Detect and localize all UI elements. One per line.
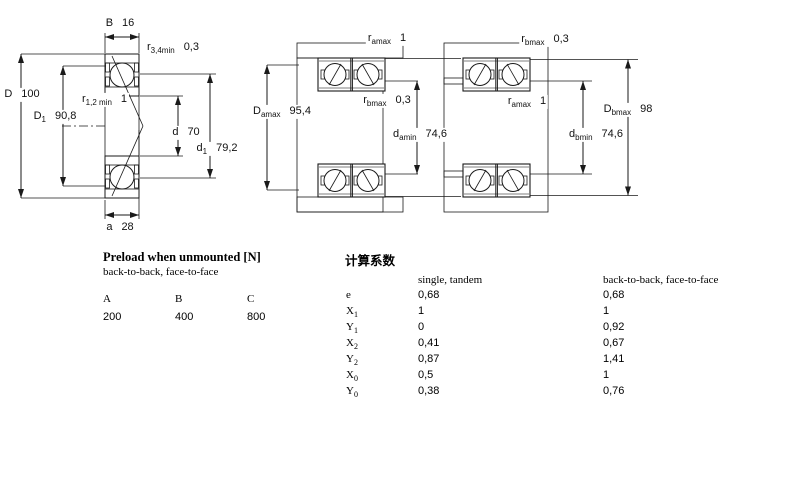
factor-paired-value: 1 — [603, 369, 800, 381]
dim-label-a: a28 — [104, 221, 135, 235]
dim-label-r12: r1,2 min1 — [80, 93, 129, 107]
dim-label-damin: damin74,6 — [391, 128, 449, 142]
preload-value-row: 200 400 800 — [103, 311, 319, 323]
factor-paired-value: 0,67 — [603, 337, 800, 349]
factor-row-y0: Y0 0,38 0,76 — [346, 385, 800, 401]
factor-row-x0: X0 0,5 1 — [346, 369, 800, 385]
factor-symbol: X1 — [346, 305, 418, 319]
factor-paired-value: 0,68 — [603, 289, 800, 301]
preload-col-a: A — [103, 293, 175, 305]
factor-row-x2: X2 0,41 0,67 — [346, 337, 800, 353]
factor-single-value: 0,5 — [418, 369, 603, 381]
dim-label-d1: d179,2 — [195, 142, 240, 156]
bearing-pair — [318, 58, 385, 91]
factor-single-value: 1 — [418, 305, 603, 317]
bearing-pair — [463, 164, 530, 197]
factor-single-value: 0,38 — [418, 385, 603, 397]
preload-subtitle: back-to-back, face-to-face — [103, 266, 218, 278]
preload-value-b: 400 — [175, 311, 247, 323]
preload-value-a: 200 — [103, 311, 175, 323]
ball — [110, 165, 134, 189]
factors-header-row: single, tandem back-to-back, face-to-fac… — [346, 274, 800, 290]
preload-title: Preload when unmounted [N] — [103, 250, 261, 265]
dim-label-rbmax-2: rbmax0,3 — [519, 33, 571, 47]
dim-label-D1: D190,8 — [32, 110, 79, 124]
dim-label-r34: r3,4min0,3 — [145, 41, 201, 55]
dim-label-Dbmax: Dbmax98 — [602, 103, 655, 117]
dim-label-dbmin: dbmin74,6 — [567, 128, 625, 142]
dim-label-ramax: ramax1 — [366, 32, 408, 46]
bearing-pair — [463, 58, 530, 91]
dim-label-B: B16 — [104, 17, 137, 31]
dim-label-D: D100 — [2, 88, 41, 102]
factor-symbol: e — [346, 289, 418, 303]
dim-label-ramax-2: ramax1 — [506, 95, 548, 109]
shaft-shoulder — [297, 197, 403, 212]
factor-paired-value: 1 — [603, 305, 800, 317]
upper-section — [105, 54, 139, 96]
factor-paired-value: 1,41 — [603, 353, 800, 365]
factor-single-value: 0,41 — [418, 337, 603, 349]
dim-label-Damax: Damax95,4 — [251, 105, 313, 119]
factor-symbol: X0 — [346, 369, 418, 383]
bearing-datasheet-page: .ln{stroke:#1a1a1a;stroke-width:1;fill:n… — [0, 0, 800, 500]
factor-row-y2: Y2 0,87 1,41 — [346, 353, 800, 369]
factor-single-value: 0,68 — [418, 289, 603, 301]
preload-header-row: A B C — [103, 293, 319, 305]
factor-symbol: Y1 — [346, 321, 418, 335]
preload-value-c: 800 — [247, 311, 319, 323]
bearing-pair — [318, 164, 385, 197]
factors-title: 计算系数 — [345, 250, 395, 269]
factor-symbol: X2 — [346, 337, 418, 351]
factor-symbol: Y0 — [346, 385, 418, 399]
dim-label-rbmax: rbmax0,3 — [361, 94, 413, 108]
factor-row-e: e 0,68 0,68 — [346, 289, 800, 305]
factor-paired-value: 0,92 — [603, 321, 800, 333]
factor-single-value: 0,87 — [418, 353, 603, 365]
factor-paired-value: 0,76 — [603, 385, 800, 397]
lower-section — [105, 156, 139, 198]
dim-label-d: d70 — [170, 126, 201, 140]
factors-col2-header: back-to-back, face-to-face — [603, 274, 800, 286]
preload-col-b: B — [175, 293, 247, 305]
factor-symbol: Y2 — [346, 353, 418, 367]
factor-row-y1: Y1 0 0,92 — [346, 321, 800, 337]
preload-col-c: C — [247, 293, 319, 305]
factor-row-x1: X1 1 1 — [346, 305, 800, 321]
factor-single-value: 0 — [418, 321, 603, 333]
factors-col1-header: single, tandem — [418, 274, 603, 286]
ball — [110, 63, 134, 87]
